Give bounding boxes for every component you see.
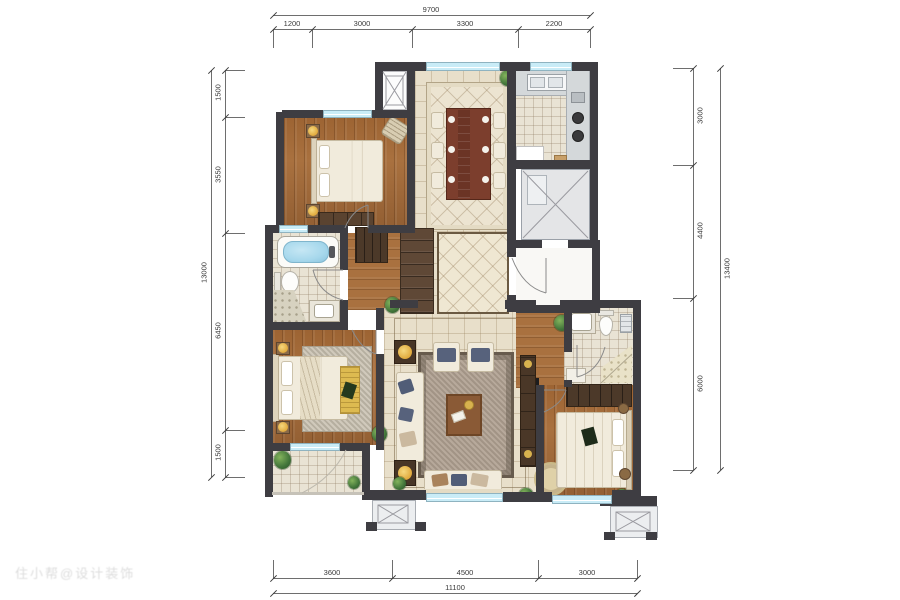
dim-extension [637, 560, 638, 578]
wall-segment [415, 522, 426, 531]
dining-plate [448, 116, 455, 123]
dim-label: 3300 [443, 19, 487, 28]
dim-tick [208, 474, 215, 481]
master-lamp [278, 343, 288, 353]
dim-line-top-total [273, 15, 590, 16]
ac-platform-left [372, 500, 416, 530]
wall-segment [633, 300, 641, 497]
wall-segment [590, 62, 598, 169]
dim-tick [634, 575, 641, 582]
bedroom2-headboard [311, 138, 317, 204]
dim-extension [673, 165, 693, 166]
dim-extension [225, 70, 245, 71]
entry-foyer-floor [516, 248, 592, 305]
dim-extension [225, 117, 245, 118]
console-vase [524, 360, 532, 368]
wall-segment [362, 490, 426, 500]
master-pillow [281, 361, 293, 386]
plant [274, 451, 291, 469]
dim-extension [412, 29, 413, 48]
dining-plate [448, 146, 455, 153]
dim-extension [273, 29, 274, 48]
wall-segment [505, 300, 536, 309]
watermark: 住小帮@设计装饰 [15, 563, 135, 582]
bathtub-water [283, 241, 329, 263]
toilet-tank [274, 272, 281, 293]
dim-label: 13000 [200, 251, 209, 295]
dim-extension [312, 29, 313, 48]
dim-label: 3000 [340, 19, 384, 28]
bedroom2-pillow [319, 173, 330, 197]
dim-extension [673, 470, 693, 471]
wall-segment [265, 230, 273, 497]
kitchen-sink-basin [530, 77, 545, 88]
dim-extension [392, 560, 393, 578]
dining-chair [431, 112, 444, 129]
wall-segment [340, 225, 348, 270]
dim-tick [587, 12, 594, 19]
wall-segment [265, 322, 348, 330]
bedroom2-dresser [318, 212, 374, 226]
dim-label: 1500 [214, 431, 223, 475]
wall-segment [272, 443, 292, 451]
wall-segment [564, 380, 572, 387]
dining-plate [448, 176, 455, 183]
plant [393, 477, 406, 490]
dim-line-bottom-segments [273, 578, 637, 579]
wall-segment [507, 162, 516, 257]
coffee-table-tray [464, 400, 474, 410]
dim-extension [273, 560, 274, 578]
floor-plan-canvas: 9700 1200 3000 3300 2200 3600 4500 3000 … [0, 0, 900, 600]
dim-extension [673, 298, 693, 299]
dim-label: 9700 [409, 5, 453, 14]
bedroom3-stool [619, 468, 631, 480]
wall-segment [516, 240, 542, 248]
kitchen-stove-burner [572, 130, 584, 142]
wall-segment [564, 308, 572, 352]
window [279, 225, 308, 233]
wall-segment [276, 112, 284, 229]
dim-line-top-segments [273, 29, 590, 30]
window [426, 62, 500, 71]
dim-extension [225, 233, 245, 234]
wall-segment [375, 62, 383, 112]
wall-segment [368, 225, 415, 233]
console-vase [524, 450, 532, 458]
dining-chair [431, 142, 444, 159]
utility-shaft-floor [382, 71, 407, 110]
window [530, 62, 572, 71]
dim-label: 3550 [214, 153, 223, 197]
master-bed-throw [300, 357, 320, 419]
living-armchair-cushion [437, 348, 456, 362]
master-pillow [281, 390, 293, 415]
dim-extension [518, 29, 519, 48]
dim-line-right-segments [693, 68, 694, 470]
bathroom1-sink [314, 304, 334, 318]
sofa-cushion-navy [451, 474, 467, 486]
bathroom2-washer [620, 314, 632, 333]
dim-label: 13400 [723, 247, 732, 291]
master-lamp [278, 422, 288, 432]
dim-label: 6000 [696, 362, 705, 406]
kitchen-stove-burner [572, 112, 584, 124]
dim-extension [673, 68, 693, 69]
dining-chair [493, 172, 506, 189]
bedroom2-pillow [319, 145, 330, 169]
dim-label: 1500 [214, 71, 223, 115]
dim-extension [225, 477, 245, 478]
kitchen-small-appliance [571, 92, 585, 103]
dim-line-left-total [211, 70, 212, 477]
wall-segment [362, 443, 370, 497]
dim-label: 11100 [433, 583, 477, 592]
bedroom2-lamp [308, 126, 318, 136]
dim-label: 4500 [443, 568, 487, 577]
wall-segment [560, 300, 641, 308]
living-armchair-cushion [471, 348, 490, 362]
window [552, 495, 612, 504]
dining-chair [493, 142, 506, 159]
balcony-door-window [290, 443, 340, 451]
bedroom2-lamp [308, 206, 318, 216]
dim-extension [225, 430, 245, 431]
dim-line-left-segments [225, 70, 226, 477]
master-headboard [272, 354, 279, 422]
balcony-railing [272, 492, 364, 495]
wall-segment [503, 492, 552, 502]
wall-segment [604, 532, 615, 540]
chaise-pillow-navy [398, 407, 414, 423]
dining-chair [431, 172, 444, 189]
dining-table-runner [458, 110, 470, 198]
wall-segment [390, 300, 418, 308]
window [323, 110, 372, 118]
dim-label: 3600 [310, 568, 354, 577]
dining-chair [493, 112, 506, 129]
living-table-lamp [398, 345, 412, 359]
dining-plate [482, 146, 489, 153]
dim-label: 4400 [696, 209, 705, 253]
sofa-cushion-brown [431, 473, 449, 487]
dim-label: 3000 [696, 94, 705, 138]
dim-label: 2200 [532, 19, 576, 28]
dim-label: 6450 [214, 309, 223, 353]
wall-segment [407, 62, 415, 232]
dim-line-right-total [720, 68, 721, 470]
dim-tick [690, 467, 697, 474]
wall-segment [376, 354, 384, 450]
wall-segment [366, 522, 377, 531]
bedroom3-pillow [612, 419, 624, 446]
wall-segment [507, 62, 516, 162]
dim-label: 1200 [270, 19, 314, 28]
wall-segment [646, 532, 657, 540]
wall-segment [590, 162, 598, 248]
corridor-inlay-rug [437, 232, 509, 314]
bathtub-faucet [329, 246, 335, 258]
toilet-bowl [281, 271, 299, 293]
bedroom3-stool [618, 403, 629, 414]
wall-segment [376, 308, 384, 330]
dim-extension [590, 29, 591, 48]
window [426, 493, 503, 502]
dim-tick [717, 467, 724, 474]
dining-plate [482, 116, 489, 123]
dining-plate [482, 176, 489, 183]
dim-label: 3000 [565, 568, 609, 577]
kitchen-sink-basin [548, 77, 563, 88]
wall-segment [536, 385, 544, 497]
bathroom2-sink [571, 313, 592, 331]
plant [348, 476, 360, 489]
wall-segment [513, 160, 598, 169]
dim-tick [634, 590, 641, 597]
dim-extension [538, 560, 539, 578]
dim-line-bottom-total [273, 593, 637, 594]
elevator-inner-panel [527, 175, 547, 205]
